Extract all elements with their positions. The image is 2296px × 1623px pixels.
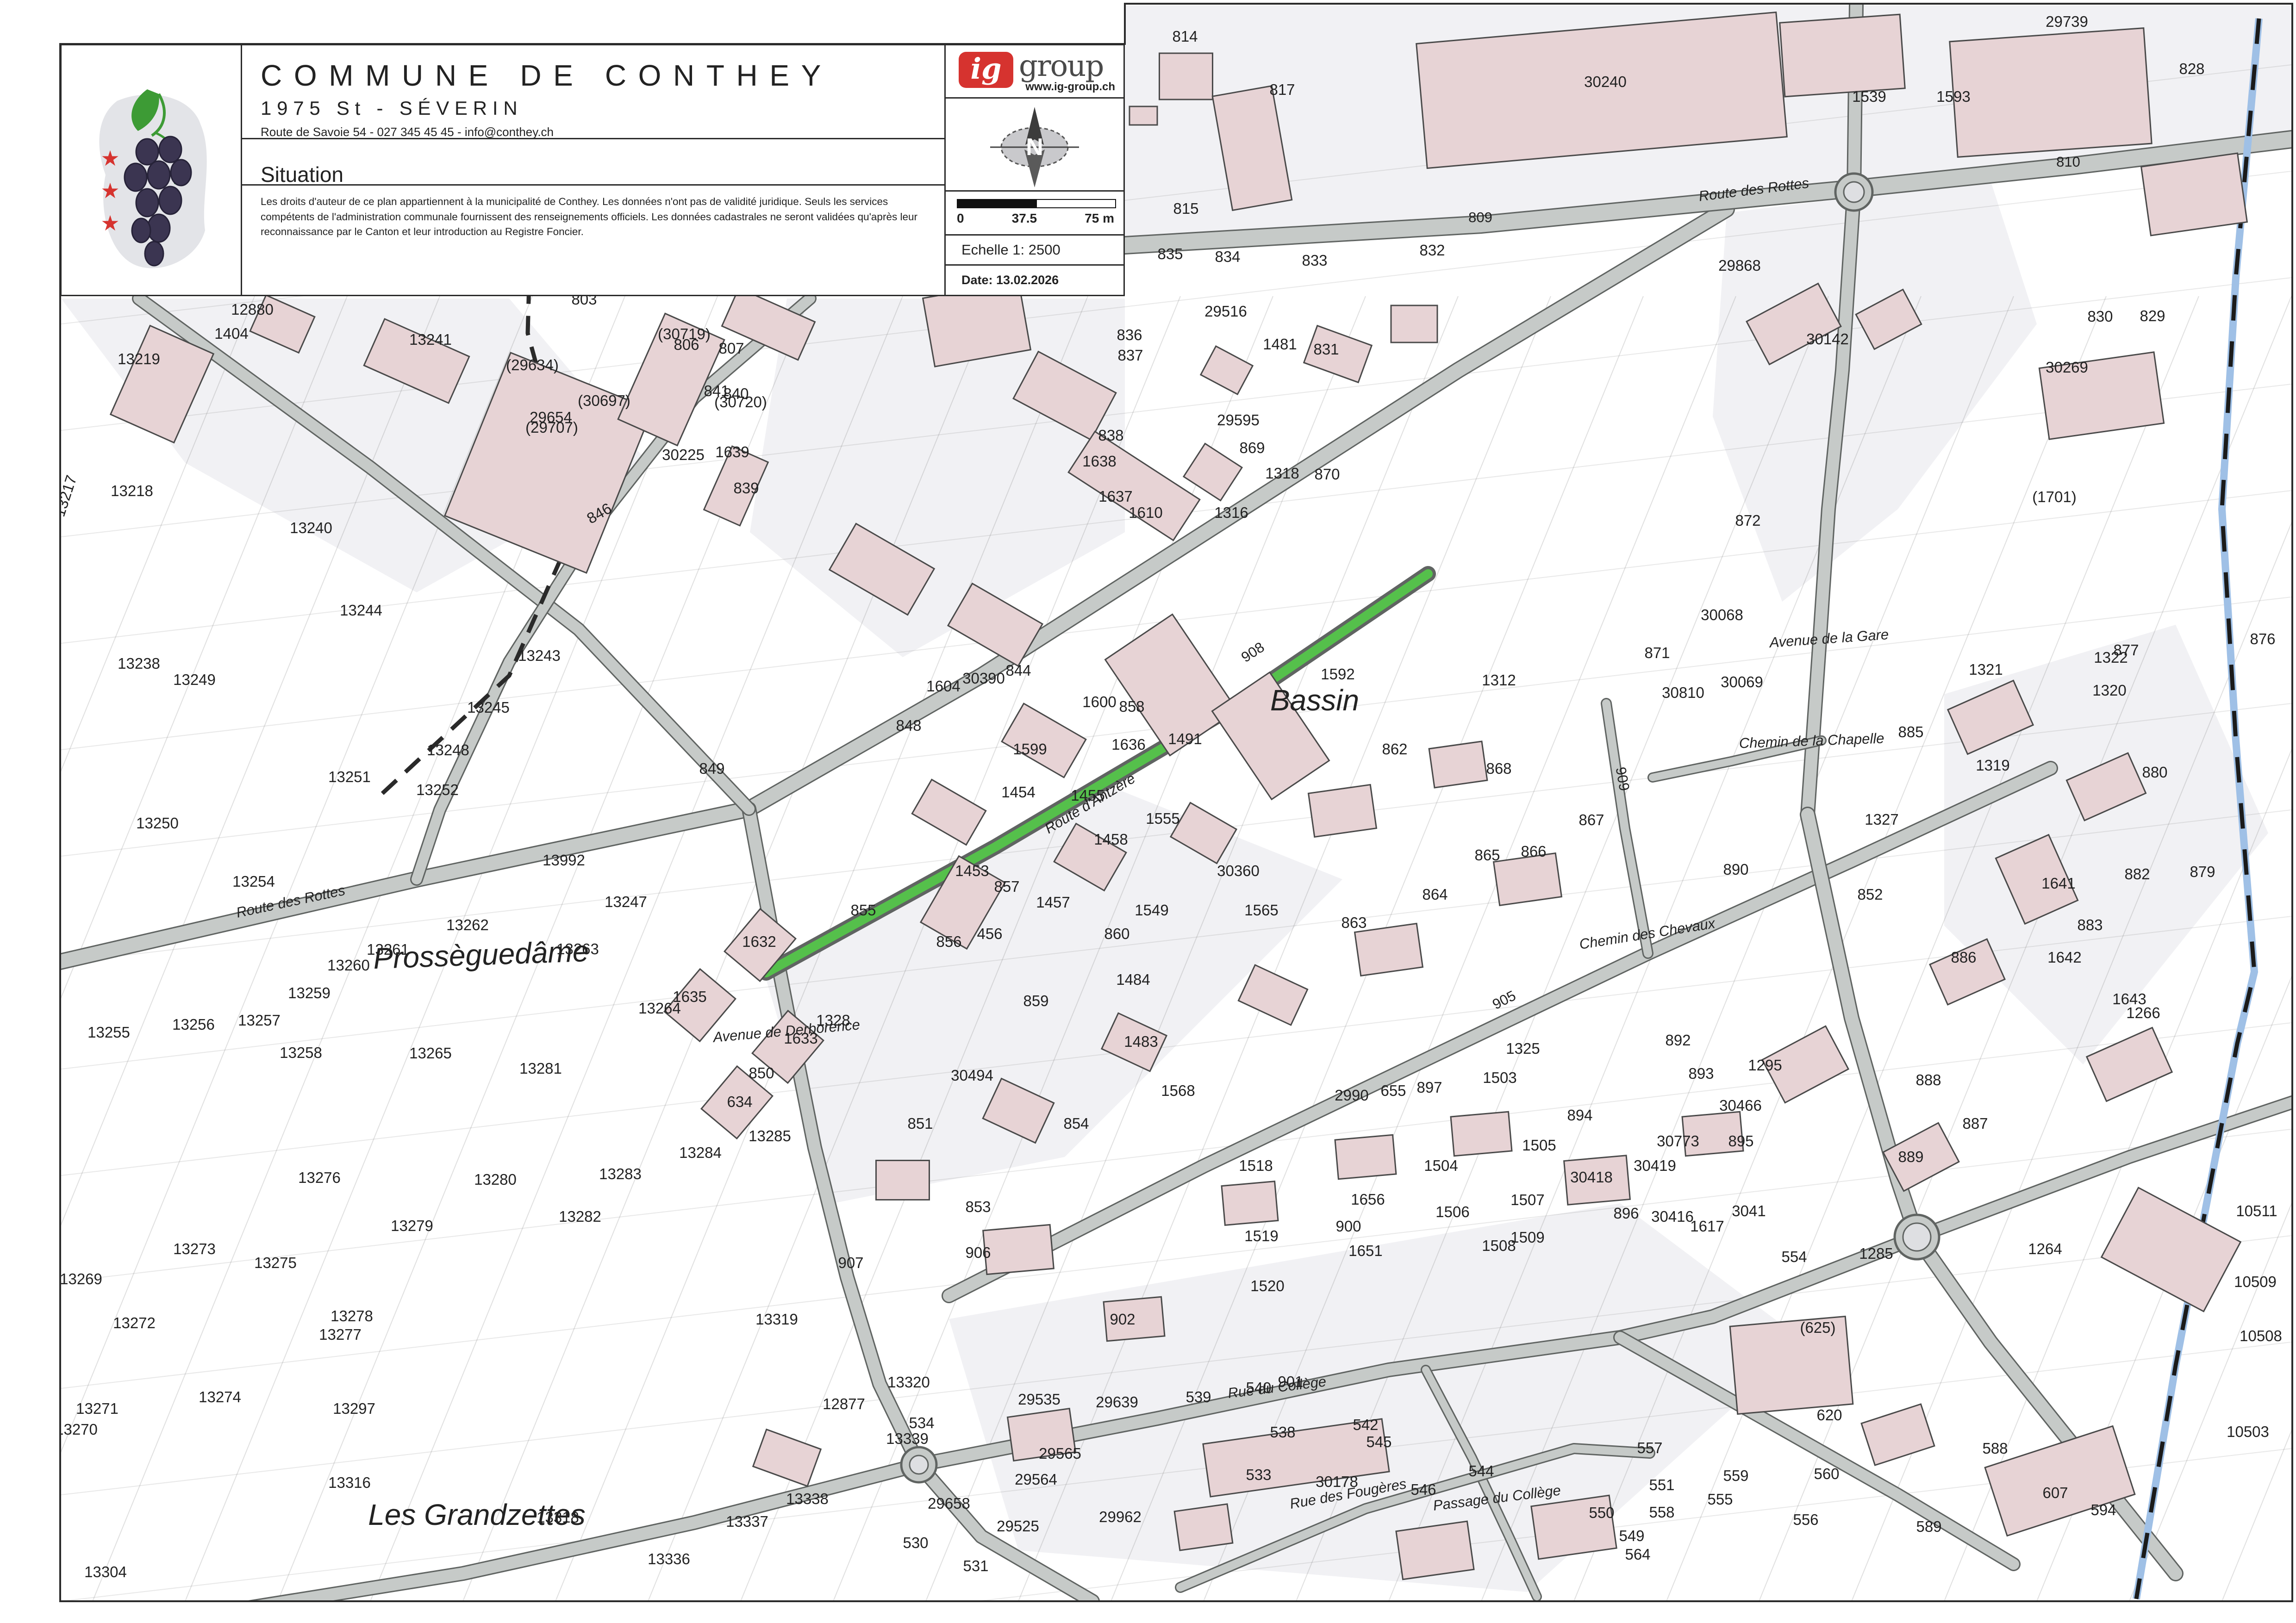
parcel-number-label: 13280: [474, 1171, 517, 1188]
parcel-number-label: 894: [1567, 1107, 1592, 1124]
parcel-number-label: 871: [1644, 644, 1670, 661]
parcel-number-label: 2990: [1335, 1087, 1368, 1104]
ig-group-url: www.ig-group.ch: [1025, 81, 1115, 93]
parcel-number-label: 542: [1353, 1416, 1378, 1433]
parcel-number-label: 13254: [232, 873, 275, 890]
svg-text:N: N: [1026, 134, 1043, 161]
parcel-number-label: 30810: [1662, 684, 1704, 701]
parcel-number-label: 564: [1625, 1546, 1650, 1563]
parcel-number-label: 1285: [1859, 1245, 1893, 1262]
parcel-number-label: 849: [699, 760, 724, 777]
parcel-number-label: 902: [1110, 1311, 1135, 1328]
parcel-number-label: 1508: [1482, 1237, 1516, 1254]
map-info-cell: ig group www.ig-group.ch N: [946, 45, 1123, 295]
parcel-number-label: 550: [1589, 1504, 1614, 1521]
parcel-number-label: 13320: [887, 1374, 930, 1391]
roundabout-island: [1903, 1223, 1931, 1251]
parcel-number-label: 30466: [1719, 1097, 1762, 1114]
parcel-number-label: 906: [965, 1244, 991, 1261]
parcel-number-label: 1458: [1094, 831, 1128, 848]
parcel-number-label: (29707): [525, 419, 578, 436]
parcel-number-label: 594: [2090, 1501, 2116, 1518]
parcel-number-label: 865: [1474, 846, 1500, 864]
parcel-number-label: 1604: [926, 678, 960, 695]
parcel-number-label: 867: [1578, 811, 1604, 828]
parcel-number-label: 1264: [2028, 1240, 2062, 1257]
parcel-number-label: 620: [1816, 1406, 1842, 1424]
parcel-number-label: 13260: [327, 957, 370, 974]
parcel-number-label: 554: [1781, 1248, 1807, 1265]
parcel-number-label: 30416: [1651, 1208, 1694, 1225]
parcel-number-label: 1295: [1748, 1057, 1782, 1074]
parcel-number-label: 1592: [1321, 665, 1354, 683]
scale-mid: 37.5: [1012, 211, 1037, 226]
parcel-number-label: 559: [1723, 1467, 1748, 1484]
parcel-number-label: 13247: [605, 893, 647, 910]
parcel-number-label: 13272: [113, 1314, 156, 1331]
parcel-number-label: 879: [2190, 863, 2215, 880]
parcel-number-label: 13275: [254, 1254, 297, 1271]
parcel-number-label: 13316: [328, 1474, 371, 1491]
parcel-number-label: 857: [994, 878, 1019, 895]
parcel-number-label: 1632: [742, 933, 776, 950]
parcel-number-label: 13279: [391, 1217, 433, 1234]
parcel-number-label: 831: [1313, 341, 1339, 358]
parcel-number-label: 13285: [749, 1127, 791, 1144]
parcel-number-label: 883: [2077, 916, 2103, 933]
parcel-number-label: 856: [936, 933, 961, 950]
parcel-number-label: 860: [1104, 925, 1129, 942]
parcel-number-label: 13219: [118, 350, 160, 367]
parcel-number-label: 837: [1117, 347, 1143, 364]
commune-title: COMMUNE DE CONTHEY: [261, 58, 926, 93]
parcel-number-label: 13257: [238, 1012, 281, 1029]
parcel-number-label: 655: [1380, 1082, 1406, 1099]
parcel-number-label: 29639: [1096, 1393, 1138, 1411]
parcel-number-label: 1312: [1482, 672, 1516, 689]
ig-group-logo-row: ig group www.ig-group.ch: [946, 45, 1123, 99]
parcel-number-label: 1636: [1111, 736, 1145, 753]
parcel-number-label: 853: [965, 1198, 991, 1215]
parcel-number-label: 13992: [543, 852, 585, 869]
parcel-number-label: 1593: [1936, 88, 1970, 105]
parcel-number-label: 13277: [319, 1326, 362, 1343]
parcel-number-label: 530: [903, 1534, 928, 1551]
parcel-number-label: 30240: [1584, 73, 1627, 90]
parcel-number-label: 1506: [1435, 1203, 1469, 1220]
parcel-number-label: 1320: [2092, 682, 2126, 699]
title-block: ★★★ COMMUNE DE CONTHEY 1975 St - SÉVERIN…: [60, 44, 1125, 296]
parcel-number-label: 13319: [755, 1311, 798, 1328]
parcel-number-label: 864: [1422, 886, 1447, 903]
parcel-number-label: 828: [2179, 60, 2204, 77]
parcel-number-label: 555: [1707, 1491, 1733, 1508]
parcel-number-label: 557: [1637, 1439, 1662, 1456]
parcel-number-label: 29962: [1099, 1508, 1142, 1525]
parcel-number-label: 13264: [638, 1000, 681, 1017]
parcel-number-label: 13240: [290, 519, 332, 536]
parcel-number-label: 1617: [1690, 1218, 1724, 1235]
commune-logo-cell: ★★★: [62, 45, 242, 295]
parcel-number-label: 13248: [427, 741, 469, 759]
roundabout-island: [1844, 182, 1864, 202]
parcel-number-label: 560: [1814, 1465, 1839, 1482]
parcel-number-label: 829: [2140, 307, 2165, 324]
parcel-number-label: 839: [733, 479, 759, 497]
parcel-number-label: 13281: [519, 1060, 562, 1077]
road-number-label: 809: [1468, 209, 1492, 225]
parcel-number-label: 13283: [599, 1165, 642, 1182]
building-footprint: [1494, 853, 1562, 906]
commune-de-conthey-grape-logo: ★★★: [62, 45, 239, 295]
commune-address: Route de Savoie 54 - 027 345 45 45 - inf…: [261, 125, 926, 139]
plan-section-title: Situation: [261, 162, 343, 187]
parcel-number-label: 1325: [1506, 1040, 1540, 1057]
parcel-number-label: 1453: [955, 862, 989, 879]
parcel-number-label: 456: [977, 925, 1002, 942]
parcel-number-label: 13244: [340, 602, 382, 619]
parcel-number-label: 1316: [1214, 504, 1248, 521]
parcel-number-label: 830: [2087, 308, 2113, 325]
parcel-number-label: 589: [1916, 1518, 1941, 1535]
building-footprint: [1174, 1504, 1233, 1550]
parcel-number-label: 13255: [87, 1024, 130, 1041]
parcel-number-label: 880: [2142, 764, 2167, 781]
parcel-number-label: 533: [1246, 1466, 1271, 1483]
scale-end: 75 m: [1085, 211, 1114, 226]
svg-text:★: ★: [100, 178, 119, 203]
parcel-number-label: 852: [1857, 886, 1883, 903]
place-name-label: Les Grandzettes: [368, 1498, 586, 1531]
parcel-number-label: 29565: [1039, 1445, 1081, 1462]
parcel-number-label: 1656: [1351, 1191, 1385, 1208]
parcel-number-label: 10511: [2236, 1202, 2277, 1219]
parcel-number-label: 1457: [1036, 894, 1070, 911]
parcel-number-label: 13297: [333, 1400, 375, 1417]
parcel-number-label: 877: [2113, 641, 2139, 659]
parcel-number-label: 1319: [1976, 757, 2009, 774]
parcel-number-label: 858: [1119, 698, 1144, 715]
parcel-number-label: 844: [1005, 662, 1031, 679]
parcel-number-label: 13256: [172, 1016, 215, 1033]
parcel-number-label: 1641: [2041, 875, 2075, 892]
parcel-number-label: 13237: [16, 657, 58, 674]
parcel-number-label: 546: [1410, 1481, 1436, 1498]
parcel-number-label: 838: [1098, 427, 1123, 444]
parcel-number-label: 907: [838, 1254, 863, 1271]
parcel-number-label: 13265: [409, 1045, 452, 1062]
parcel-number-label: 30390: [962, 670, 1005, 687]
divider: [242, 184, 944, 186]
parcel-number-label: 832: [1419, 242, 1445, 259]
parcel-number-label: 29525: [997, 1517, 1039, 1535]
building-footprint: [1355, 924, 1423, 976]
parcel-number-label: 13262: [446, 916, 489, 933]
parcel-number-label: 30419: [1634, 1157, 1676, 1174]
parcel-number-label: 896: [1613, 1205, 1639, 1222]
parcel-number-label: 13245: [467, 699, 510, 716]
parcel-number-label: 30225: [662, 446, 705, 463]
building-footprint: [1222, 1181, 1278, 1225]
ig-group-wordmark: group: [1019, 49, 1103, 83]
parcel-number-label: 892: [1665, 1032, 1691, 1049]
parcel-number-label: 551: [1649, 1476, 1674, 1493]
parcel-number-label: 13270: [55, 1421, 98, 1438]
parcel-number-label: 1481: [1263, 336, 1297, 353]
parcel-number-label: 1610: [1129, 504, 1162, 521]
parcel-number-label: 1639: [715, 443, 749, 460]
parcel-number-label: 850: [749, 1064, 774, 1082]
parcel-number-label: (1701): [2032, 488, 2076, 505]
building-footprint: [1950, 28, 2152, 157]
parcel-number-label: 869: [1239, 439, 1265, 456]
roundabout-island: [910, 1455, 928, 1474]
parcel-number-label: 588: [1982, 1440, 2008, 1457]
divider: [242, 138, 944, 139]
parcel-number-label: 13276: [298, 1169, 341, 1186]
parcel-number-label: 538: [1270, 1424, 1295, 1441]
parcel-number-label: 872: [1735, 512, 1760, 529]
parcel-number-label: 13284: [679, 1144, 722, 1161]
parcel-number-label: 900: [1335, 1218, 1361, 1235]
parcel-number-label: 1651: [1348, 1242, 1382, 1259]
parcel-number-label: 863: [1341, 914, 1366, 931]
parcel-number-label: 833: [1302, 252, 1327, 269]
parcel-number-label: 29516: [1204, 303, 1247, 320]
parcel-number-label: 556: [1793, 1511, 1818, 1528]
parcel-number-label: 13269: [60, 1270, 102, 1287]
parcel-number-label: 29564: [1015, 1471, 1057, 1488]
building-footprint: [983, 1225, 1054, 1274]
north-arrow-row: N: [946, 99, 1123, 190]
parcel-number-label: 534: [909, 1414, 934, 1431]
parcel-number-label: 1539: [1852, 88, 1886, 105]
parcel-number-label: 897: [1416, 1079, 1442, 1096]
parcel-number-label: 815: [1173, 200, 1198, 217]
north-arrow-icon: N: [946, 99, 1123, 190]
parcel-number-label: 868: [1486, 760, 1511, 777]
parcel-number-label: 30069: [1721, 673, 1763, 690]
parcel-number-label: 1454: [1001, 784, 1035, 801]
scale-bar-segment: [958, 200, 1036, 207]
parcel-number-label: 10503: [2227, 1423, 2269, 1440]
parcel-number-label: 855: [850, 902, 876, 919]
parcel-number-label: 30773: [1657, 1132, 1699, 1150]
parcel-number-label: 1637: [1098, 488, 1132, 505]
building-footprint: [1129, 106, 1157, 125]
parcel-number-label: 1549: [1135, 902, 1168, 919]
parcel-number-label: 1518: [1239, 1157, 1273, 1174]
scale-bar-segment: [1036, 200, 1115, 207]
parcel-number-label: 1555: [1146, 810, 1179, 827]
svg-text:★: ★: [100, 211, 119, 236]
ig-logo: ig: [959, 52, 1013, 88]
parcel-number-label: 12877: [823, 1395, 865, 1412]
parcel-number-label: 13337: [726, 1513, 768, 1530]
parcel-number-label: 1507: [1510, 1191, 1544, 1208]
parcel-number-label: 30142: [1806, 330, 1849, 348]
commune-subtitle: 1975 St - SÉVERIN: [261, 97, 926, 119]
parcel-number-label: 30360: [1217, 862, 1260, 879]
parcel-number-label: 1505: [1522, 1137, 1556, 1154]
parcel-number-label: (625): [1800, 1319, 1835, 1336]
parcel-number-label: 1484: [1116, 971, 1150, 988]
parcel-number-label: 539: [1185, 1388, 1211, 1405]
parcel-number-label: 895: [1728, 1132, 1753, 1150]
building-footprint: [1396, 1521, 1474, 1579]
parcel-number-label: 851: [907, 1115, 933, 1132]
parcel-number-label: 890: [1723, 861, 1748, 878]
parcel-number-label: 888: [1915, 1071, 1941, 1088]
parcel-number-label: 1520: [1250, 1277, 1284, 1294]
parcel-number-label: 29739: [2046, 13, 2088, 30]
parcel-number-label: 1266: [2126, 1004, 2160, 1021]
parcel-number-label: 1568: [1161, 1082, 1195, 1099]
parcel-number-label: 13278: [331, 1307, 373, 1325]
parcel-number-label: 854: [1063, 1115, 1089, 1132]
parcel-number-label: 13259: [288, 984, 331, 1001]
scale-ratio: Echelle 1: 2500: [946, 234, 1123, 264]
scale-start: 0: [957, 211, 964, 226]
parcel-number-label: 30068: [1701, 606, 1743, 623]
scale-bar-labels: 0 37.5 75 m: [957, 211, 1114, 226]
parcel-number-label: (30720): [714, 393, 767, 410]
parcel-number-label: 882: [2124, 865, 2150, 883]
building-footprint: [876, 1161, 930, 1200]
parcel-number-label: 13273: [173, 1240, 216, 1257]
parcel-number-label: 29658: [928, 1495, 970, 1512]
building-footprint: [1451, 1112, 1512, 1156]
parcel-number-label: 1638: [1082, 453, 1116, 470]
parcel-number-label: 889: [1898, 1148, 1923, 1165]
parcel-number-label: 13282: [559, 1208, 601, 1225]
parcel-number-label: 13339: [886, 1430, 929, 1447]
parcel-number-label: 1600: [1082, 693, 1116, 710]
parcel-number-label: 13274: [199, 1388, 241, 1405]
scale-bar-row: 0 37.5 75 m: [946, 190, 1123, 234]
parcel-number-label: 29535: [1018, 1391, 1061, 1408]
parcel-number-label: 834: [1215, 248, 1240, 265]
parcel-number-label: 848: [896, 717, 921, 734]
parcel-number-label: 10509: [2234, 1273, 2277, 1290]
parcel-number-label: 1404: [214, 325, 248, 342]
scale-bar: [957, 199, 1116, 208]
parcel-number-label: 3041: [1732, 1202, 1766, 1219]
building-footprint: [1780, 14, 1905, 97]
date-value: 13.02.2026: [996, 273, 1059, 287]
parcel-number-label: (29634): [506, 356, 559, 373]
parcel-number-label: 558: [1649, 1504, 1674, 1521]
parcel-number-label: 1599: [1013, 740, 1047, 758]
parcel-number-label: 1504: [1424, 1157, 1458, 1174]
parcel-number-label: 13336: [648, 1550, 690, 1567]
parcel-number-label: 1503: [1483, 1069, 1516, 1086]
parcel-number-label: 13243: [518, 647, 561, 664]
parcel-number-label: 29868: [1718, 257, 1761, 274]
parcel-number-label: 835: [1157, 245, 1183, 262]
parcel-number-label: 13271: [76, 1400, 119, 1417]
parcel-number-label: 887: [1962, 1115, 1988, 1132]
parcel-number-label: 13304: [84, 1563, 127, 1580]
parcel-number-label: 885: [1898, 723, 1923, 740]
parcel-number-label: 876: [2250, 630, 2275, 647]
parcel-number-label: 1642: [2047, 949, 2081, 966]
parcel-number-label: 30494: [951, 1067, 993, 1084]
parcel-number-label: 29595: [1217, 411, 1260, 429]
building-footprint: [1391, 305, 1437, 342]
parcel-number-label: 1491: [1168, 730, 1202, 747]
parcel-number-label: 817: [1269, 81, 1295, 98]
parcel-number-label: 30269: [2046, 359, 2088, 376]
parcel-number-label: 13338: [786, 1490, 829, 1507]
parcel-number-label: 13242: [0, 892, 40, 909]
parcel-number-label: 13238: [118, 655, 160, 672]
parcel-number-label: 806: [674, 336, 699, 353]
parcel-number-label: 1483: [1124, 1033, 1158, 1050]
parcel-number-label: 634: [727, 1093, 752, 1110]
parcel-number-label: 13251: [328, 768, 371, 785]
parcel-number-label: 13249: [173, 671, 216, 688]
parcel-number-label: 13252: [416, 781, 459, 798]
parcel-number-label: 866: [1521, 843, 1546, 860]
parcel-number-label: 862: [1382, 740, 1407, 758]
legal-disclaimer: Les droits d'auteur de ce plan appartien…: [261, 194, 923, 240]
parcel-number-label: 1321: [1969, 661, 2003, 678]
scanned-situation-plan: 8148173024081583583483383229739828153915…: [0, 0, 2296, 1623]
parcel-number-label: 870: [1314, 466, 1340, 483]
building-footprint: [1429, 741, 1487, 788]
parcel-number-label: 607: [2042, 1484, 2068, 1501]
parcel-number-label: 814: [1172, 28, 1198, 45]
parcel-number-label: 836: [1117, 326, 1142, 343]
building-footprint: [2141, 153, 2247, 236]
plan-date: Date: 13.02.2026: [946, 264, 1123, 295]
parcel-number-label: 10508: [2240, 1327, 2282, 1344]
parcel-number-label: 1565: [1244, 902, 1278, 919]
date-label: Date:: [961, 273, 993, 287]
building-footprint: [1335, 1135, 1396, 1179]
parcel-number-label: 13241: [409, 331, 452, 348]
place-name-label: Bassin: [1270, 684, 1359, 717]
parcel-number-label: 1318: [1265, 465, 1299, 482]
parcel-number-label: 544: [1468, 1462, 1494, 1480]
building-footprint: [1309, 785, 1377, 837]
parcel-number-label: 13218: [111, 482, 153, 499]
title-text-cell: COMMUNE DE CONTHEY 1975 St - SÉVERIN Rou…: [242, 45, 946, 295]
building-footprint: [1160, 53, 1213, 99]
parcel-number-label: 859: [1023, 992, 1048, 1009]
parcel-number-label: 13250: [136, 815, 179, 832]
parcel-number-label: 531: [963, 1557, 988, 1574]
parcel-number-label: 12880: [231, 301, 274, 318]
parcel-number-label: 893: [1688, 1065, 1714, 1082]
svg-text:★: ★: [100, 146, 119, 171]
parcel-number-label: (30697): [578, 392, 630, 409]
parcel-number-label: 886: [1951, 949, 1976, 966]
parcel-number-label: 13258: [280, 1044, 322, 1061]
parcel-number-label: 1327: [1865, 811, 1898, 828]
road-number-label: 810: [2056, 154, 2080, 170]
parcel-number-label: 1519: [1244, 1227, 1278, 1244]
parcel-number-label: 30418: [1570, 1169, 1613, 1186]
parcel-number-label: 545: [1366, 1433, 1391, 1450]
parcel-number-label: 549: [1619, 1527, 1644, 1544]
parcel-number-label: 807: [718, 340, 744, 357]
